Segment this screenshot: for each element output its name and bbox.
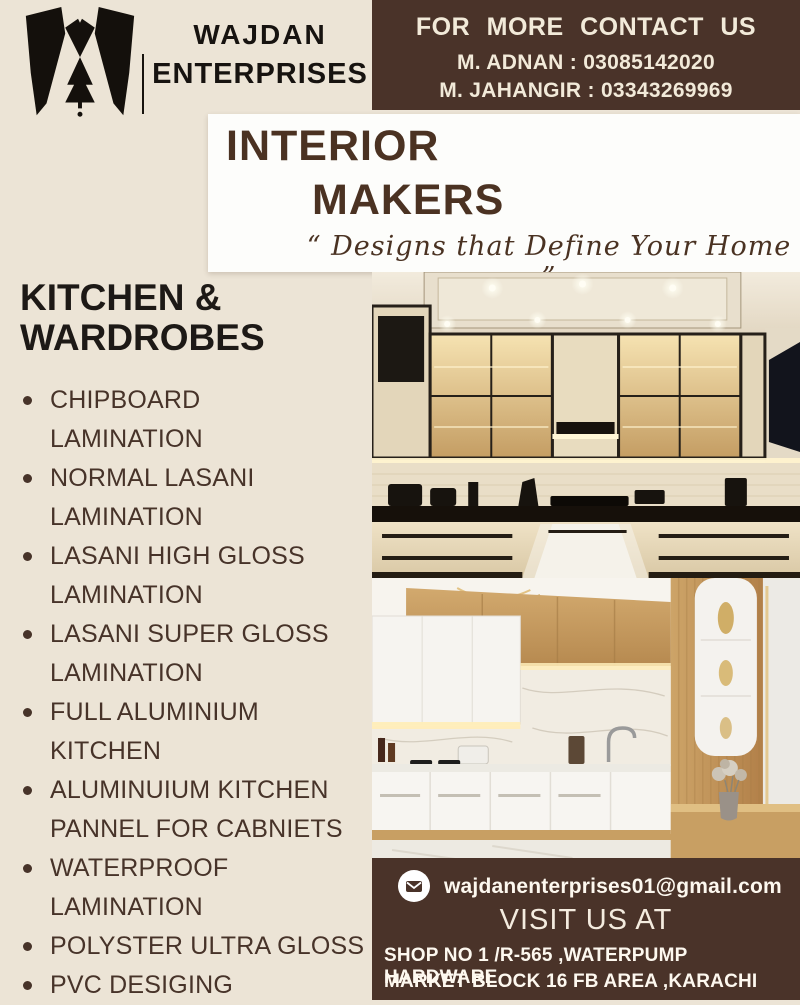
brand-name-line1: WAJDAN <box>152 16 368 54</box>
visit-us-label: VISIT US AT <box>372 904 800 937</box>
contact-title: FOR MORE CONTACT US <box>372 13 800 42</box>
kitchen-photo-2 <box>372 578 800 860</box>
kitchen-photo-1 <box>372 272 800 578</box>
title-banner: INTERIOR MAKERS “ Designs that Define Yo… <box>208 114 800 272</box>
footer: wajdanenterprises01@gmail.com VISIT US A… <box>372 858 800 1000</box>
contact-phone-jahangir: M. JAHANGIR : 03343269969 <box>372 77 800 105</box>
brand-name-line2: ENTERPRISES <box>152 54 368 94</box>
brand-name: WAJDAN ENTERPRISES <box>152 16 368 94</box>
services-list: CHIPBOARD LAMINATION NORMAL LASANI LAMIN… <box>20 381 365 1005</box>
service-item: POLYSTER ULTRA GLOSS <box>20 927 365 966</box>
service-item: ALUMINUIUM KITCHEN PANNEL FOR CABNIETS <box>20 771 365 849</box>
brand-divider <box>142 54 144 114</box>
title-interior: INTERIOR <box>226 122 439 171</box>
email-text: wajdanenterprises01@gmail.com <box>444 875 782 899</box>
service-item: FULL ALUMINIUM KITCHEN <box>20 693 365 771</box>
address-line2: MARKET BLOCK 16 FB AREA ,KARACHI <box>384 971 757 993</box>
service-item: LASANI HIGH GLOSS LAMINATION <box>20 537 365 615</box>
services-section: KITCHEN & WARDROBES CHIPBOARD LAMINATION… <box>20 278 365 1005</box>
service-item: LASANI SUPER GLOSS LAMINATION <box>20 615 365 693</box>
envelope-icon <box>398 870 430 902</box>
service-item: PVC DESIGING <box>20 966 365 1005</box>
contact-phone-adnan: M. ADNAN : 03085142020 <box>372 49 800 77</box>
title-makers: MAKERS <box>312 176 504 225</box>
services-heading: KITCHEN & WARDROBES <box>20 278 365 358</box>
service-item: NORMAL LASANI LAMINATION <box>20 459 365 537</box>
wajdan-logo <box>16 4 144 118</box>
service-item: CHIPBOARD LAMINATION <box>20 381 365 459</box>
wajdan-w-monogram-icon <box>16 4 144 122</box>
contact-box: FOR MORE CONTACT US M. ADNAN : 030851420… <box>372 0 800 110</box>
service-item: WATERPROOF LAMINATION <box>20 849 365 927</box>
